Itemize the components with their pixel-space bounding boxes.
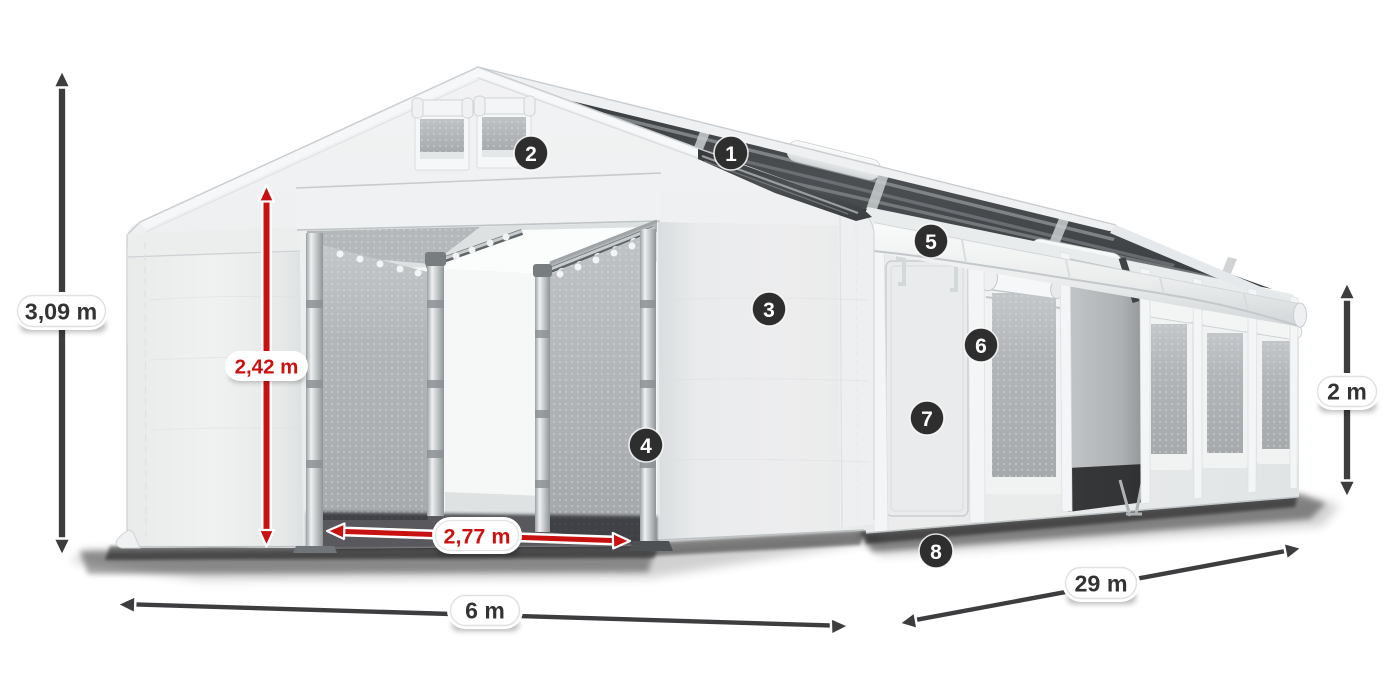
- svg-text:6: 6: [975, 335, 987, 358]
- svg-text:2,77 m: 2,77 m: [444, 525, 511, 549]
- svg-text:8: 8: [930, 541, 942, 564]
- svg-text:4: 4: [640, 435, 652, 458]
- svg-text:6 m: 6 m: [465, 598, 505, 624]
- svg-text:2: 2: [525, 143, 537, 166]
- svg-text:2 m: 2 m: [1327, 379, 1367, 405]
- svg-text:3,09 m: 3,09 m: [25, 299, 98, 325]
- svg-text:3: 3: [763, 299, 775, 322]
- svg-text:7: 7: [921, 408, 933, 431]
- svg-text:5: 5: [925, 231, 937, 254]
- svg-text:2,42 m: 2,42 m: [235, 356, 299, 379]
- svg-text:1: 1: [725, 143, 737, 166]
- svg-text:29 m: 29 m: [1074, 571, 1127, 597]
